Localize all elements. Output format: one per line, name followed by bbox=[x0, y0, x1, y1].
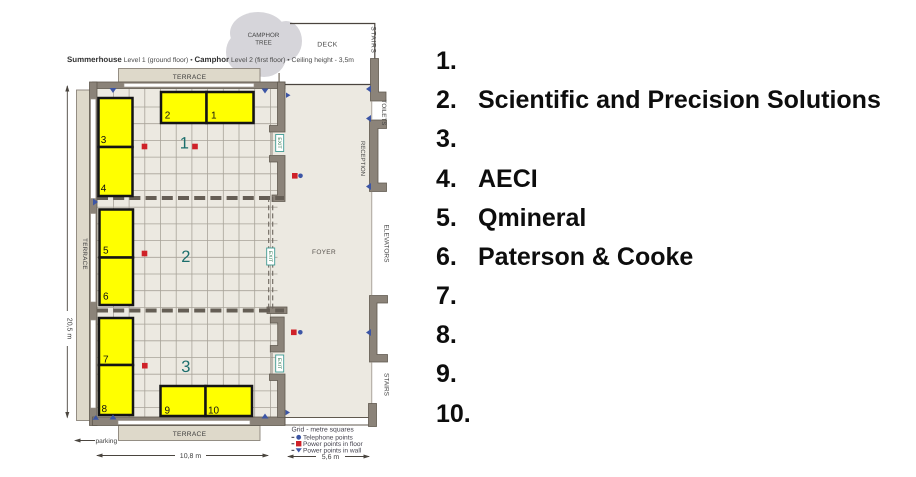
svg-text:9: 9 bbox=[165, 406, 171, 417]
svg-text:3: 3 bbox=[101, 135, 107, 146]
svg-text:EXIT: EXIT bbox=[276, 137, 282, 148]
svg-text:8: 8 bbox=[102, 404, 108, 415]
svg-text:DECK: DECK bbox=[317, 42, 338, 49]
svg-text:TOILETS: TOILETS bbox=[380, 100, 387, 126]
svg-text:Grid - metre squares: Grid - metre squares bbox=[292, 427, 355, 434]
svg-text:3: 3 bbox=[181, 358, 190, 376]
svg-text:STAIRS: STAIRS bbox=[382, 373, 389, 397]
svg-text:5,6 m: 5,6 m bbox=[322, 454, 340, 461]
svg-text:ELEVATORS: ELEVATORS bbox=[383, 225, 390, 264]
svg-text:parking: parking bbox=[96, 438, 118, 445]
svg-text:TREE: TREE bbox=[255, 40, 272, 47]
svg-text:Summerhouse Level 1 (ground fl: Summerhouse Level 1 (ground floor) • Cam… bbox=[67, 55, 354, 64]
svg-text:STAIRS: STAIRS bbox=[369, 26, 376, 53]
svg-text:EXIT: EXIT bbox=[276, 358, 282, 369]
svg-text:Power points in wall: Power points in wall bbox=[303, 448, 362, 455]
svg-text:5: 5 bbox=[103, 246, 109, 257]
svg-text:4: 4 bbox=[101, 184, 107, 195]
svg-text:RECEPTION: RECEPTION bbox=[359, 141, 366, 176]
svg-text:20,5 m: 20,5 m bbox=[66, 318, 73, 340]
svg-text:2: 2 bbox=[181, 248, 190, 266]
svg-text:1: 1 bbox=[180, 134, 189, 152]
svg-text:TERRACE: TERRACE bbox=[173, 431, 207, 438]
svg-text:10,8 m: 10,8 m bbox=[180, 453, 202, 460]
svg-text:FOYER: FOYER bbox=[312, 249, 336, 256]
svg-text:TERRACE: TERRACE bbox=[173, 74, 207, 81]
svg-text:CAMPHOR: CAMPHOR bbox=[248, 32, 280, 39]
svg-text:6: 6 bbox=[103, 292, 109, 303]
svg-text:10: 10 bbox=[208, 406, 220, 417]
svg-text:TERRACE: TERRACE bbox=[81, 238, 88, 270]
svg-text:1: 1 bbox=[211, 111, 217, 122]
svg-text:2: 2 bbox=[165, 111, 171, 122]
svg-text:EXIT: EXIT bbox=[267, 251, 273, 262]
